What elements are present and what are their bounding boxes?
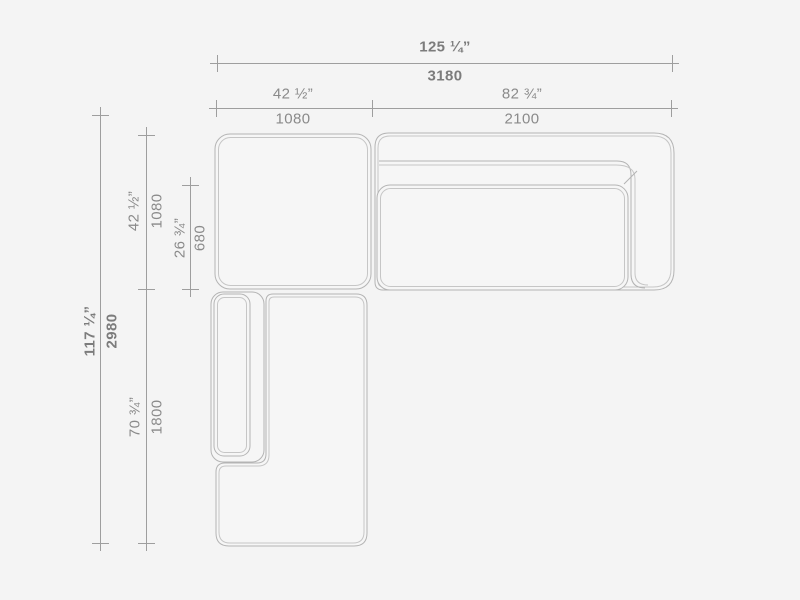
sofa-modules-group: [211, 133, 674, 546]
label-seat-depth-mm: 680: [193, 225, 208, 251]
label-left-module-width-mm: 1080: [276, 112, 311, 127]
sofa-right-seat-cushion: [377, 185, 628, 290]
label-right-module-width-inches: 82 ¾”: [502, 87, 542, 102]
sofa-plan-drawing: [0, 0, 800, 600]
label-overall-width-inches: 125 ¼”: [419, 40, 471, 55]
label-overall-depth-mm: 2980: [105, 314, 120, 349]
label-seat-depth-inches: 26 ¾”: [173, 218, 188, 258]
chaise-armrest-cushion: [214, 294, 250, 456]
label-overall-depth-inches: 117 ¼”: [83, 306, 98, 357]
sofa-module-top-left-ottoman: [215, 134, 371, 289]
label-chaise-length-mm: 1800: [150, 400, 165, 435]
label-left-module-width-inches: 42 ½”: [273, 87, 313, 102]
label-right-module-width-mm: 2100: [505, 112, 540, 127]
dimension-lines-group: [92, 55, 679, 551]
label-overall-width-mm: 3180: [428, 69, 463, 84]
technical-drawing-canvas: 125 ¼” 3180 42 ½” 1080 82 ¾” 2100 117 ¼”…: [0, 0, 800, 600]
label-top-module-depth-mm: 1080: [150, 194, 165, 229]
label-top-module-depth-inches: 42 ½”: [127, 191, 142, 231]
label-chaise-length-inches: 70 ¾”: [128, 397, 143, 437]
